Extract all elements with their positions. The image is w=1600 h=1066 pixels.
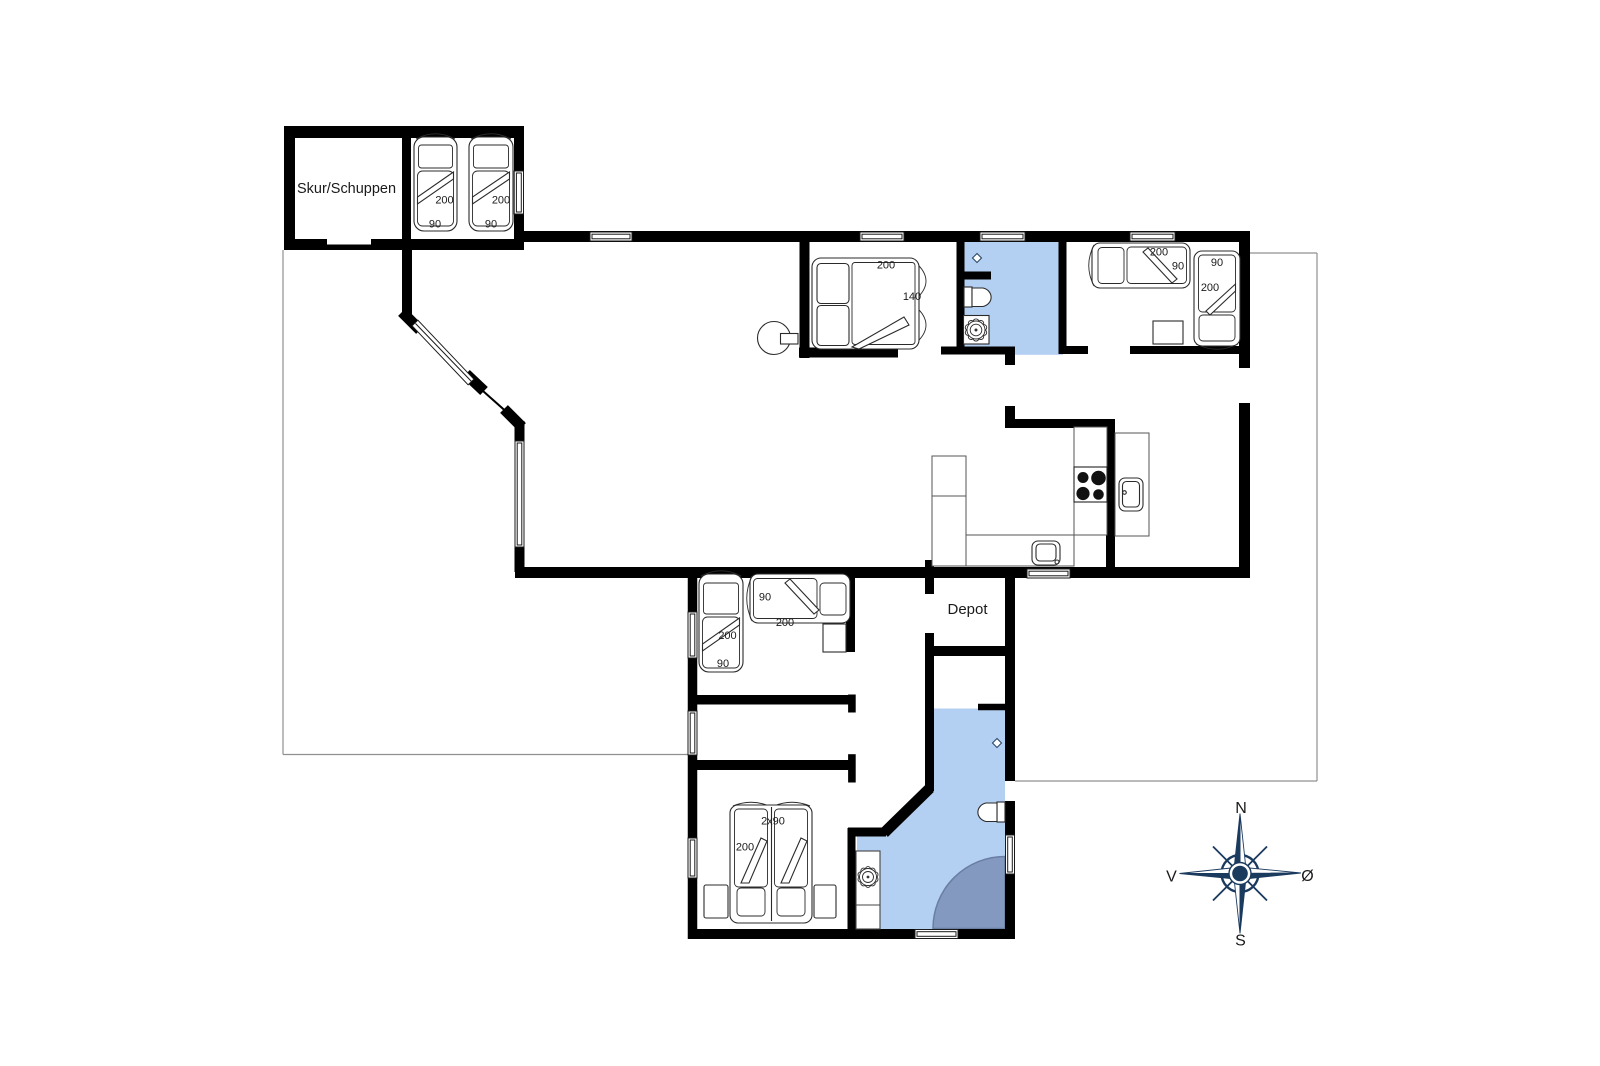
svg-text:90: 90 <box>1172 261 1184 273</box>
svg-text:140: 140 <box>903 291 921 303</box>
svg-text:Depot: Depot <box>947 601 988 618</box>
svg-text:90: 90 <box>429 219 441 231</box>
svg-text:200: 200 <box>492 195 510 207</box>
svg-text:N: N <box>1235 800 1247 817</box>
svg-text:90: 90 <box>1211 257 1223 269</box>
svg-text:200: 200 <box>718 630 736 642</box>
svg-text:200: 200 <box>1150 247 1168 259</box>
svg-text:200: 200 <box>435 195 453 207</box>
svg-text:V: V <box>1166 868 1177 885</box>
svg-text:200: 200 <box>1201 282 1219 294</box>
svg-text:2x90: 2x90 <box>761 816 785 828</box>
svg-text:Ø: Ø <box>1301 868 1313 885</box>
svg-text:200: 200 <box>736 842 754 854</box>
svg-text:Skur/Schuppen: Skur/Schuppen <box>297 181 396 197</box>
svg-text:90: 90 <box>485 219 497 231</box>
svg-text:200: 200 <box>776 617 794 629</box>
svg-text:90: 90 <box>759 592 771 604</box>
svg-text:90: 90 <box>717 658 729 670</box>
svg-text:S: S <box>1235 933 1246 950</box>
svg-text:200: 200 <box>877 260 895 272</box>
